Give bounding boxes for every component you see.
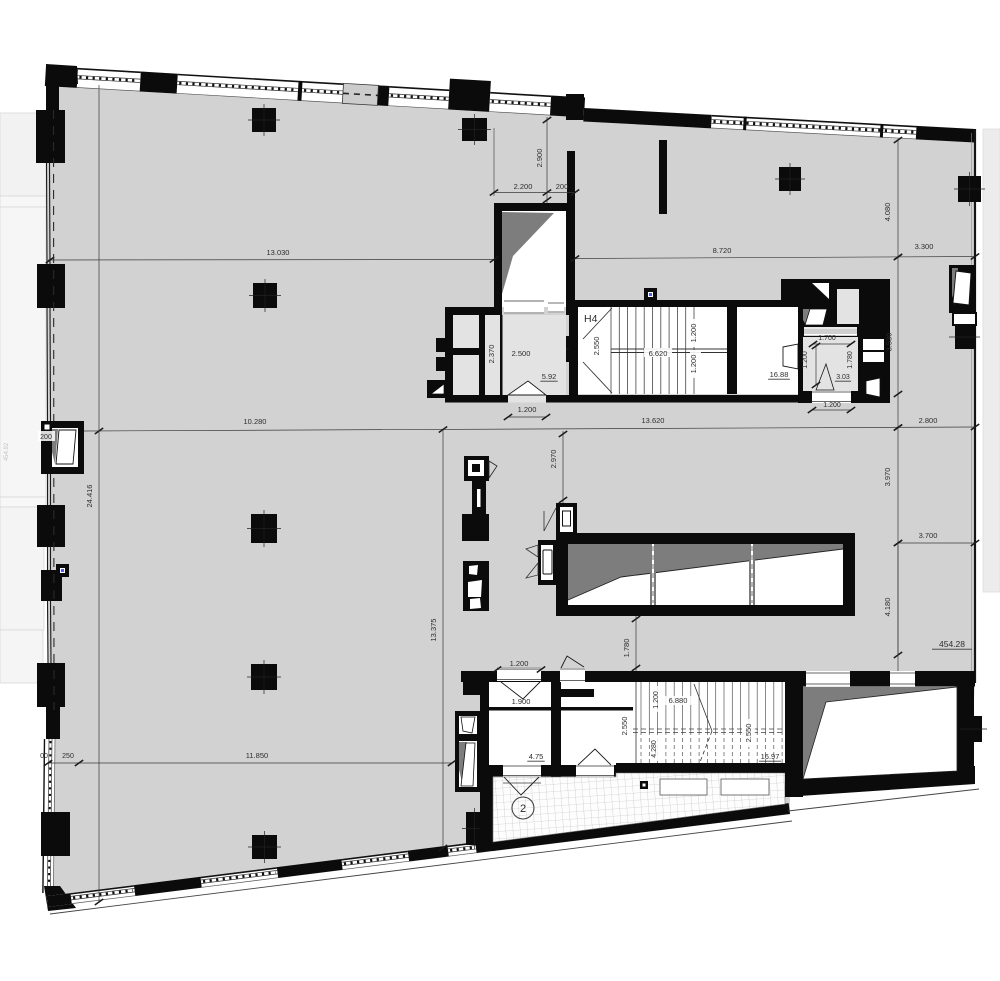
svg-text:1.200: 1.200 <box>689 324 698 343</box>
svg-text:24.416: 24.416 <box>85 485 94 508</box>
svg-text:1.200: 1.200 <box>653 691 660 709</box>
svg-text:13.375: 13.375 <box>429 619 438 642</box>
svg-text:6.880: 6.880 <box>669 696 688 705</box>
svg-text:3.970: 3.970 <box>883 468 892 487</box>
svg-text:1.900: 1.900 <box>512 697 531 706</box>
svg-text:2.550: 2.550 <box>592 337 601 356</box>
svg-text:16.97: 16.97 <box>761 752 780 761</box>
svg-text:00: 00 <box>40 753 48 760</box>
svg-text:2.550: 2.550 <box>744 724 753 743</box>
svg-text:3.300: 3.300 <box>915 242 934 251</box>
svg-text:1.780: 1.780 <box>847 351 854 369</box>
svg-text:3.03: 3.03 <box>836 374 850 381</box>
svg-text:1.200: 1.200 <box>510 659 529 668</box>
svg-text:1.200: 1.200 <box>689 355 698 374</box>
svg-text:2.200: 2.200 <box>514 182 533 191</box>
svg-text:3.700: 3.700 <box>919 531 938 540</box>
svg-text:454.92: 454.92 <box>4 442 10 461</box>
svg-text:4.280: 4.280 <box>651 740 658 758</box>
svg-text:2.500: 2.500 <box>512 349 531 358</box>
svg-text:4.080: 4.080 <box>883 203 892 222</box>
svg-text:4.180: 4.180 <box>883 598 892 617</box>
svg-text:3.530: 3.530 <box>885 333 894 352</box>
svg-text:2: 2 <box>520 803 526 815</box>
svg-text:6.620: 6.620 <box>649 349 668 358</box>
svg-text:2.900: 2.900 <box>535 149 544 168</box>
svg-text:2.800: 2.800 <box>919 416 938 425</box>
svg-text:200: 200 <box>40 434 52 441</box>
svg-text:16.88: 16.88 <box>770 370 789 379</box>
svg-text:2.970: 2.970 <box>549 450 558 469</box>
svg-text:5.92: 5.92 <box>542 372 557 381</box>
svg-text:1.700: 1.700 <box>818 335 836 342</box>
svg-text:1.200: 1.200 <box>518 405 537 414</box>
svg-text:4.75: 4.75 <box>529 752 544 761</box>
svg-text:1.780: 1.780 <box>622 639 631 658</box>
svg-text:H4: H4 <box>584 313 598 325</box>
svg-text:10.280: 10.280 <box>244 417 267 426</box>
svg-text:200: 200 <box>556 182 569 191</box>
svg-text:11.850: 11.850 <box>246 751 268 760</box>
svg-text:1.200: 1.200 <box>823 402 841 409</box>
svg-text:8.720: 8.720 <box>713 246 732 255</box>
svg-text:13.030: 13.030 <box>267 248 290 257</box>
svg-text:454.28: 454.28 <box>939 639 965 649</box>
svg-text:250: 250 <box>62 753 74 760</box>
svg-text:1.200: 1.200 <box>802 351 809 369</box>
svg-text:13.620: 13.620 <box>642 416 665 425</box>
svg-text:2.550: 2.550 <box>620 717 629 736</box>
svg-text:2.370: 2.370 <box>487 345 496 364</box>
